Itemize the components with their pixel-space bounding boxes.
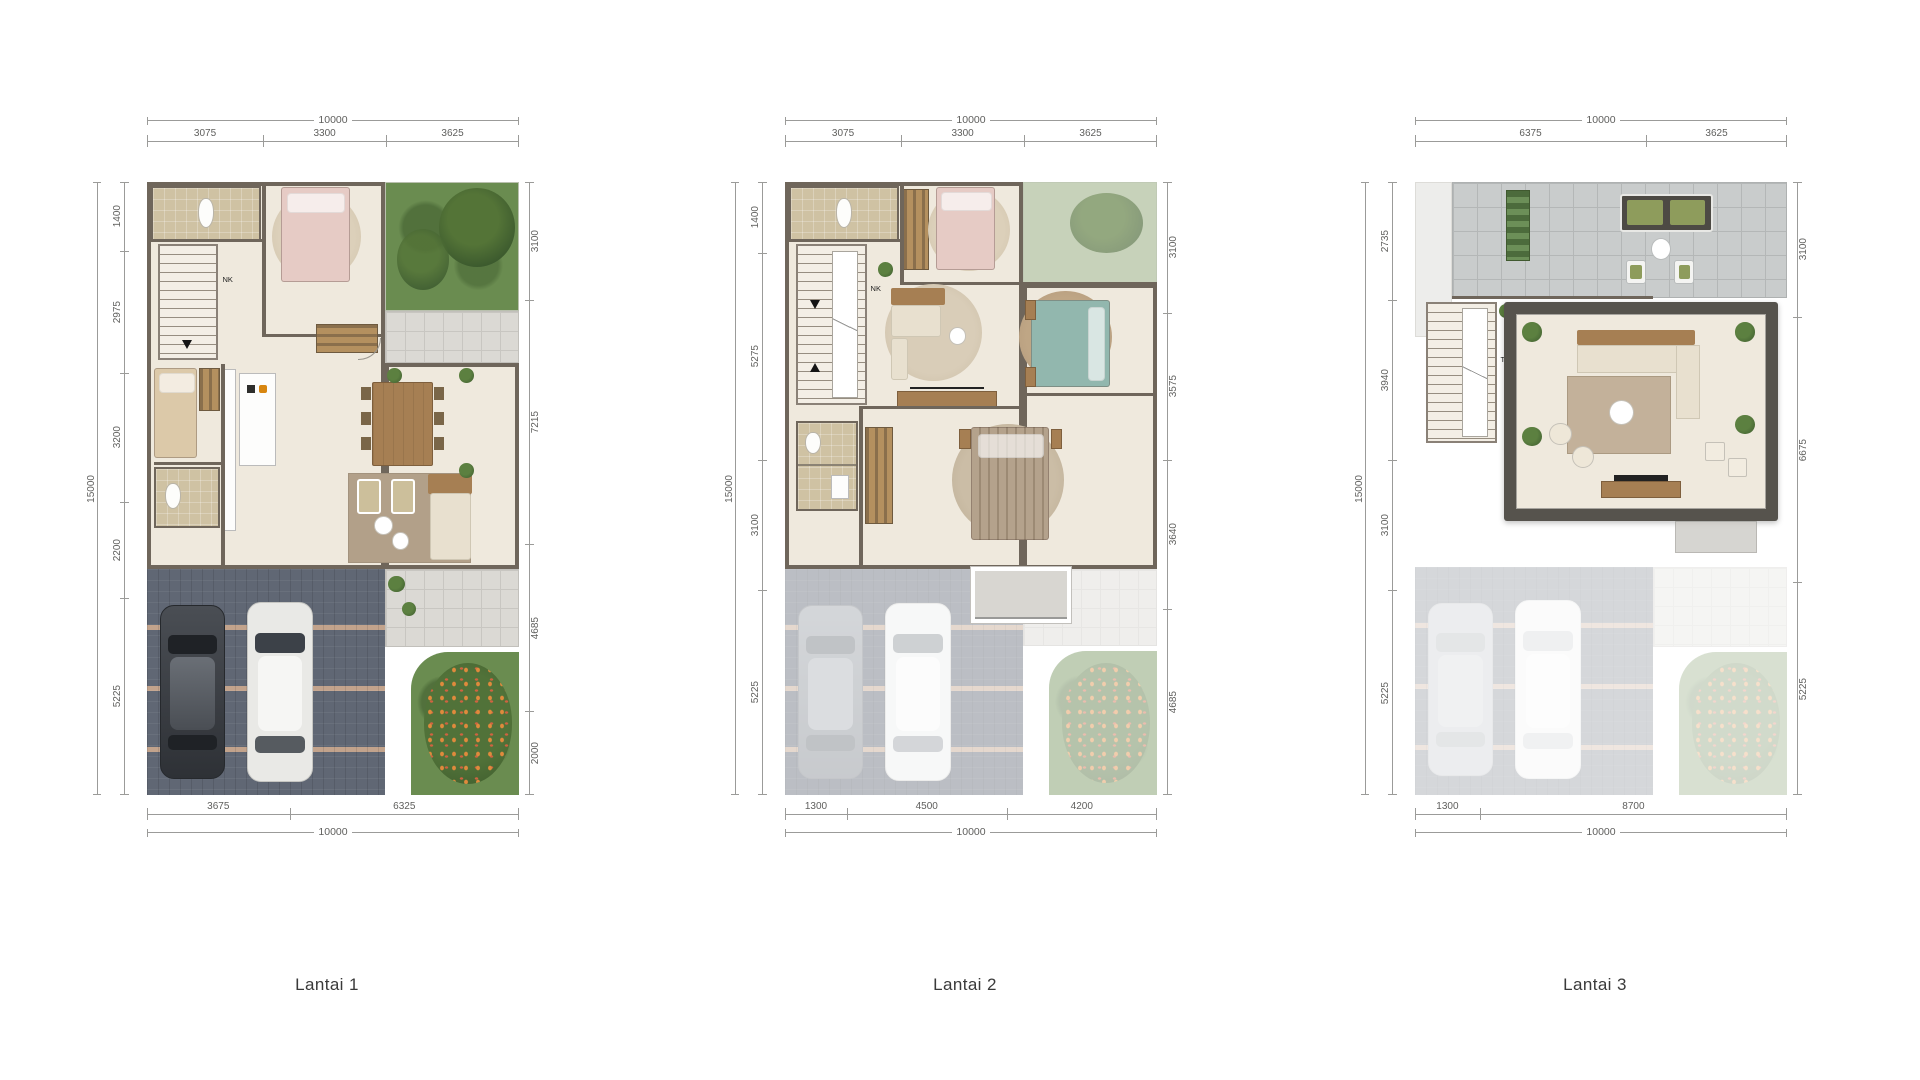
wall <box>1452 296 1653 299</box>
coffee-table <box>949 327 966 344</box>
nightstand <box>1025 367 1036 388</box>
pillows <box>1088 307 1106 381</box>
plan-title-lantai-2: Lantai 2 <box>715 975 1215 995</box>
balcony <box>971 567 1071 624</box>
lounge-chair <box>1549 423 1571 445</box>
kitchen-island <box>239 373 276 466</box>
stair-direction-icon <box>810 300 820 309</box>
dimension-segment: 1400 <box>745 182 767 253</box>
car-roof <box>170 657 214 729</box>
closet <box>199 368 221 411</box>
dimension-segment: 3075 <box>785 128 901 150</box>
staircase <box>158 244 218 360</box>
cushion <box>1670 200 1706 224</box>
dimension-value: 5225 <box>113 685 123 707</box>
stove <box>247 385 255 393</box>
dim-left-segments: 2735394031005225 <box>1375 182 1397 795</box>
stair-note: NK <box>223 276 233 284</box>
dimension-value: 3100 <box>751 514 761 536</box>
dimension-value: 2975 <box>113 301 123 323</box>
car-roof <box>258 656 302 731</box>
wall <box>789 239 901 242</box>
dimension-segment: 6375 <box>1415 128 1646 150</box>
car-windshield <box>1436 633 1485 652</box>
dim-right-segments: 3100357536404685 <box>1163 182 1185 795</box>
wardrobe <box>903 189 929 270</box>
dimension-value: 4200 <box>1071 801 1093 823</box>
dim-left-total: 15000 <box>721 182 739 795</box>
car-dark-ghost <box>798 605 863 779</box>
bush <box>439 188 516 267</box>
car-dark <box>160 605 225 779</box>
dimension-segment: 3100 <box>1163 182 1185 313</box>
car-rear-window <box>893 736 942 752</box>
car-windshield <box>806 636 855 655</box>
stair-direction-icon <box>182 340 192 349</box>
flowering-bush <box>1692 663 1781 783</box>
dimension-value: 6675 <box>1799 439 1809 461</box>
dimension-segment: 6325 <box>290 801 519 823</box>
car-rear-window <box>1436 732 1485 747</box>
dimension-value: 8700 <box>1622 801 1644 823</box>
bathroom-1 <box>151 186 261 241</box>
cushion <box>1627 200 1663 224</box>
dim-bottom-segments: 13008700 <box>1415 801 1787 823</box>
dining-chairs-left <box>361 387 371 462</box>
dimension-value: 1400 <box>113 205 123 227</box>
dimension-segment: 6675 <box>1793 317 1815 582</box>
dimension-segment: 5225 <box>107 598 129 795</box>
plan-group-lantai-2: 10000 307533003625 15000 140052753100522… <box>715 110 1215 1020</box>
dim-right-segments: 310066755225 <box>1793 182 1815 795</box>
dimension-value: 3100 <box>531 230 541 252</box>
dimension-segment: 7215 <box>525 300 547 545</box>
bed-pink <box>936 187 996 270</box>
planter-box <box>1506 190 1529 261</box>
armchair <box>391 479 415 514</box>
dining-chairs-right <box>434 387 444 462</box>
dimension-value: 5225 <box>1381 682 1391 704</box>
dim-total-value: 10000 <box>1582 827 1619 838</box>
toilet <box>836 198 852 228</box>
car-rear-window <box>168 735 217 750</box>
dimension-segment: 4200 <box>1007 801 1157 823</box>
palm-plant <box>388 576 405 593</box>
dimension-segment: 1300 <box>1415 801 1480 823</box>
vanity <box>831 475 848 499</box>
dim-left-segments: 14002975320022005225 <box>107 182 129 795</box>
dimension-segment: 2975 <box>107 251 129 373</box>
round-table <box>1609 400 1634 425</box>
dimension-segment: 2000 <box>525 711 547 795</box>
entry-path-ghost <box>1653 567 1787 646</box>
car-dark-ghost <box>1428 603 1493 776</box>
dimension-value: 7215 <box>531 411 541 433</box>
dimension-value: 3575 <box>1169 375 1179 397</box>
dimension-segment: 3625 <box>1646 128 1787 150</box>
armchair <box>357 479 381 514</box>
car-windshield <box>893 634 942 653</box>
shower-divider <box>798 464 855 466</box>
dimension-segment: 5225 <box>1375 590 1397 795</box>
dimension-segment: 2200 <box>107 502 129 598</box>
roof-terrace <box>1452 182 1787 298</box>
floor-plan-lantai-1: NK <box>147 150 519 795</box>
car-roof <box>1438 655 1482 727</box>
plant <box>1522 427 1542 446</box>
dimension-segment: 5225 <box>745 590 767 795</box>
car-rear-window <box>806 735 855 750</box>
car-roof <box>808 658 852 730</box>
sofa <box>891 305 941 337</box>
dimension-value: 3625 <box>1079 128 1101 150</box>
dim-bottom-total: 10000 <box>147 824 519 840</box>
car-white-ghost <box>885 603 950 781</box>
tv <box>910 387 984 389</box>
dimension-segment: 1300 <box>785 801 847 823</box>
cushion <box>1630 265 1641 279</box>
dimension-segment: 3100 <box>1793 182 1815 317</box>
dim-left-segments: 1400527531005225 <box>745 182 767 795</box>
dim-bottom-total: 10000 <box>785 824 1157 840</box>
wall <box>1023 393 1157 396</box>
tv <box>1614 475 1668 481</box>
pillows <box>978 434 1044 458</box>
car-windshield <box>168 635 217 654</box>
dim-total-value: 10000 <box>1582 115 1619 126</box>
dimension-segment: 3575 <box>1163 313 1185 460</box>
dimension-value: 5275 <box>751 345 761 367</box>
outdoor-chair <box>1674 260 1694 284</box>
dimension-value: 3200 <box>113 426 123 448</box>
dimension-segment: 3200 <box>107 373 129 502</box>
plan-group-lantai-3: 10000 63753625 15000 2735394031005225 31… <box>1345 110 1845 1020</box>
plan-title-lantai-3: Lantai 3 <box>1345 975 1845 995</box>
car-rear-window <box>1523 733 1572 749</box>
dimension-value: 3625 <box>1705 128 1727 150</box>
dimension-segment: 3640 <box>1163 460 1185 609</box>
car-windshield <box>1523 631 1572 650</box>
wall <box>154 462 221 465</box>
page: { "plans": [ { "label": "Lantai 1", "not… <box>0 0 1920 1080</box>
dimension-value: 4500 <box>916 801 938 823</box>
flowering-bush <box>1062 663 1151 784</box>
plant <box>1735 415 1755 434</box>
dimension-value: 1300 <box>805 801 827 823</box>
dimension-value: 3675 <box>207 801 229 823</box>
wall <box>859 406 1023 409</box>
plant <box>459 463 474 478</box>
palm-plant <box>402 602 416 616</box>
bed-guest <box>154 368 197 458</box>
dimension-segment: 3625 <box>1024 128 1157 150</box>
dim-top-total: 10000 <box>147 112 519 128</box>
dimension-segment: 3075 <box>147 128 263 150</box>
stair-direction-icon <box>810 363 820 372</box>
dimension-value: 3100 <box>1381 514 1391 536</box>
dimension-value: 3075 <box>832 128 854 150</box>
bush <box>1070 193 1143 253</box>
dimension-segment: 8700 <box>1480 801 1787 823</box>
dim-top-total: 10000 <box>1415 112 1787 128</box>
plan-group-lantai-1: 10000 307533003625 15000 140029753200220… <box>77 110 577 1020</box>
dimension-value: 4685 <box>531 617 541 639</box>
car-white <box>247 602 312 783</box>
dim-total-value: 15000 <box>87 475 97 503</box>
car-roof <box>1526 654 1570 728</box>
nightstand <box>1025 300 1036 321</box>
tv-console <box>1601 481 1680 498</box>
dim-bottom-segments: 36756325 <box>147 801 519 823</box>
car-roof <box>896 657 940 731</box>
cushion <box>1679 265 1690 279</box>
nightstand <box>959 429 970 450</box>
lower-roof-step <box>1675 521 1757 553</box>
dim-top-total: 10000 <box>785 112 1157 128</box>
dimension-segment: 2735 <box>1375 182 1397 300</box>
dim-total-value: 15000 <box>725 475 735 503</box>
dimension-value: 1400 <box>751 206 761 228</box>
toilet <box>805 432 821 454</box>
dim-total-value: 10000 <box>314 115 351 126</box>
dimension-value: 1300 <box>1436 801 1458 823</box>
dimension-value: 3075 <box>194 128 216 150</box>
dim-bottom-total: 10000 <box>1415 824 1787 840</box>
dimension-value: 2735 <box>1381 230 1391 252</box>
wall <box>262 182 266 336</box>
dimension-value: 5225 <box>1799 678 1809 700</box>
pillows <box>941 192 991 210</box>
floor-plan-lantai-3: TR <box>1415 150 1787 795</box>
dimension-value: 3100 <box>1799 238 1809 260</box>
dim-top-segments: 307533003625 <box>785 128 1157 150</box>
room-interior <box>1516 314 1765 509</box>
wardrobe <box>865 427 893 524</box>
outdoor-chair <box>1626 260 1646 284</box>
garden-bottom-right <box>406 647 519 795</box>
dimension-value: 5225 <box>751 681 761 703</box>
dimension-segment: 4685 <box>1163 609 1185 795</box>
stair-void <box>832 251 858 398</box>
coffee-table <box>392 532 409 549</box>
garden-ghost <box>1674 647 1787 795</box>
dimension-value: 6375 <box>1519 128 1541 150</box>
dimension-value: 3300 <box>951 128 973 150</box>
floor-plan-lantai-2: NK <box>785 150 1157 795</box>
dining-table <box>372 382 434 466</box>
wall <box>900 182 904 285</box>
dim-total-value: 10000 <box>952 115 989 126</box>
dimension-value: 4685 <box>1169 691 1179 713</box>
dim-top-segments: 63753625 <box>1415 128 1787 150</box>
sofa-chaise <box>891 338 908 379</box>
dim-right-segments: 3100721546852000 <box>525 182 547 795</box>
pillows <box>287 193 345 213</box>
dimension-segment: 4685 <box>525 544 547 711</box>
plant <box>878 262 893 277</box>
dim-bottom-segments: 130045004200 <box>785 801 1157 823</box>
dim-total-value: 10000 <box>314 827 351 838</box>
bush <box>397 229 450 290</box>
stair-void <box>1462 308 1488 437</box>
dimension-value: 3940 <box>1381 369 1391 391</box>
sofa-side <box>1676 345 1701 418</box>
outdoor-sofa <box>1620 194 1713 233</box>
dimension-segment: 3300 <box>901 128 1024 150</box>
dim-total-value: 10000 <box>952 827 989 838</box>
bed-pink <box>281 187 350 281</box>
dimension-segment: 3100 <box>1375 460 1397 591</box>
dimension-segment: 3625 <box>386 128 519 150</box>
outdoor-table <box>1651 238 1671 260</box>
dimension-segment: 4500 <box>847 801 1007 823</box>
wall <box>151 239 263 242</box>
toilet <box>165 483 181 509</box>
dimension-value: 6325 <box>393 801 415 823</box>
accent-chair <box>1705 442 1725 461</box>
bathroom-1 <box>789 186 899 241</box>
roofed-room <box>1504 302 1777 521</box>
dim-total-value: 15000 <box>1355 475 1365 503</box>
dimension-segment: 5225 <box>1793 582 1815 795</box>
sofa-back <box>1577 330 1696 345</box>
dimension-segment: 3675 <box>147 801 290 823</box>
dim-top-segments: 307533003625 <box>147 128 519 150</box>
garden-top-right <box>385 182 519 311</box>
plant <box>387 368 402 383</box>
car-rear-window <box>255 736 304 752</box>
dimension-value: 3100 <box>1169 236 1179 258</box>
plant <box>1522 322 1542 341</box>
toilet <box>198 198 214 228</box>
dimension-value: 2000 <box>531 742 541 764</box>
dimension-value: 3300 <box>313 128 335 150</box>
sofa <box>430 493 471 560</box>
pillows <box>159 373 195 393</box>
balcony-railing <box>975 617 1067 619</box>
bathroom-2 <box>154 467 219 528</box>
plant <box>1735 322 1755 341</box>
wall <box>221 364 225 568</box>
stair-note: NK <box>871 285 881 293</box>
bed-master <box>971 427 1049 539</box>
coffee-table <box>374 516 393 535</box>
dimension-segment: 3100 <box>745 460 767 591</box>
dimension-segment: 3100 <box>525 182 547 300</box>
accent-chair <box>1728 458 1748 477</box>
dimension-segment: 5275 <box>745 253 767 460</box>
plan-title-lantai-1: Lantai 1 <box>77 975 577 995</box>
flowering-bush <box>424 663 513 783</box>
sofa-back <box>891 288 945 305</box>
dim-left-total: 15000 <box>83 182 101 795</box>
bed-teal <box>1031 300 1111 388</box>
car-windshield <box>255 633 304 653</box>
nightstand <box>1051 429 1062 450</box>
bathroom-2 <box>796 421 857 511</box>
lower-floor-ghost <box>1415 521 1787 795</box>
dimension-value: 2200 <box>113 539 123 561</box>
car-white-ghost <box>1515 600 1580 778</box>
wall <box>859 408 863 569</box>
garden-below-faded <box>1023 182 1157 283</box>
side-terrace-tiles <box>385 311 519 363</box>
dimension-value: 3640 <box>1169 523 1179 545</box>
dimension-segment: 1400 <box>107 182 129 251</box>
dimension-segment: 3940 <box>1375 300 1397 460</box>
lounge-chair <box>1572 446 1594 468</box>
sink <box>259 385 267 393</box>
garden-ghost <box>1044 646 1157 795</box>
dimension-segment: 3300 <box>263 128 386 150</box>
dimension-value: 3625 <box>441 128 463 150</box>
dim-left-total: 15000 <box>1351 182 1369 795</box>
